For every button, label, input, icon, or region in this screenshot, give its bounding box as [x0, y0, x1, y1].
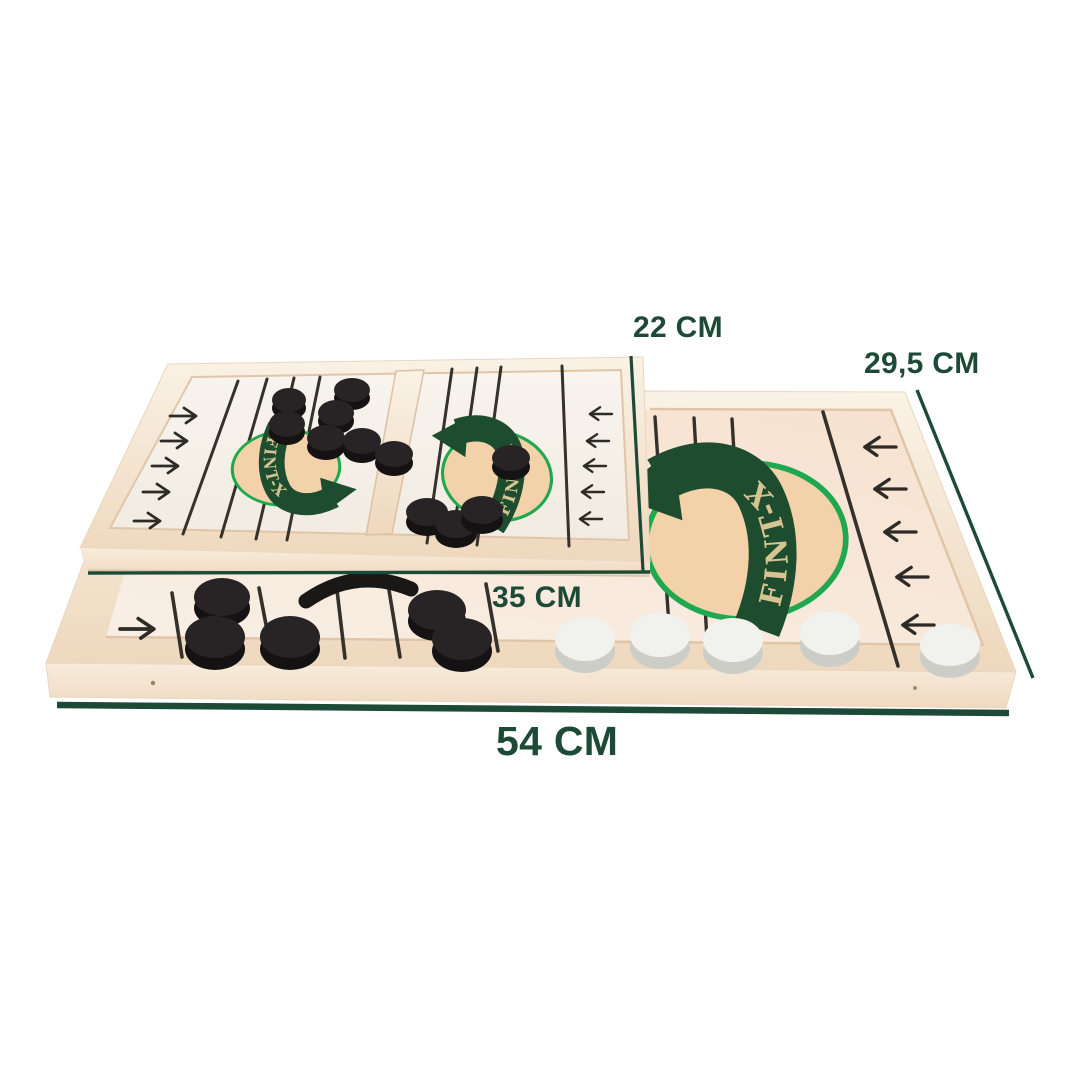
black-puck	[343, 428, 381, 463]
product-photo-canvas: FINT-X	[0, 0, 1080, 1080]
dimension-label-small-width: 22 CM	[633, 313, 723, 343]
product-illustration: FINT-X	[0, 0, 1080, 1080]
screw-dot	[151, 681, 155, 685]
small-board	[80, 357, 650, 577]
white-puck	[800, 611, 860, 667]
black-puck	[375, 441, 413, 476]
black-puck	[432, 618, 492, 672]
dimension-label-big-length: 54 CM	[496, 721, 618, 762]
black-puck	[260, 616, 320, 670]
white-puck	[630, 613, 690, 669]
black-puck	[269, 411, 305, 445]
white-puck	[920, 624, 980, 678]
black-puck	[185, 616, 245, 670]
black-puck	[307, 425, 345, 460]
white-puck	[555, 617, 615, 673]
black-puck	[461, 496, 503, 534]
screw-dot	[913, 686, 917, 690]
dimension-label-small-length: 35 CM	[492, 583, 582, 613]
white-puck	[703, 618, 763, 674]
dimension-label-big-width: 29,5 CM	[864, 349, 979, 379]
dimension-line-35cm	[88, 572, 650, 573]
black-puck	[492, 445, 530, 480]
